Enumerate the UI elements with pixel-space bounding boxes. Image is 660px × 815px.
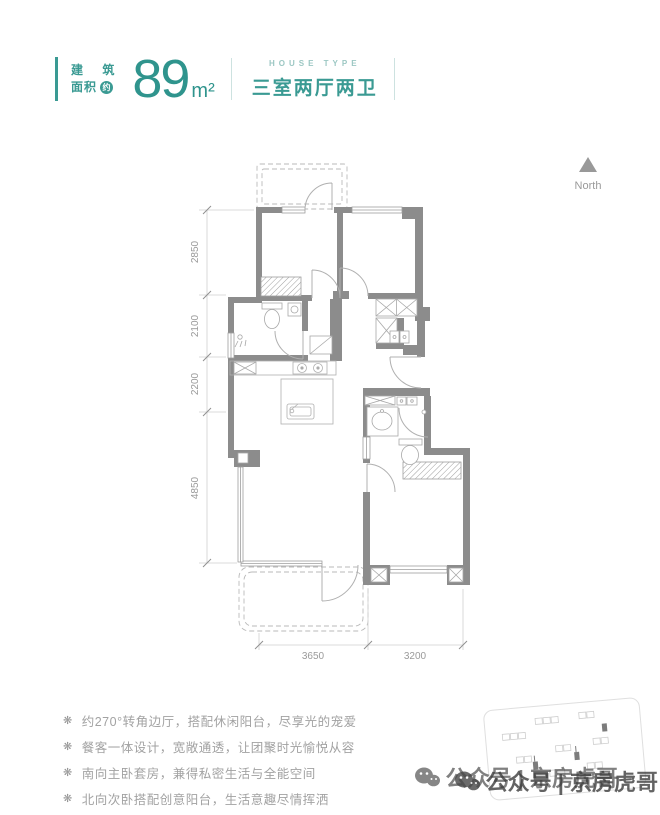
entry-door: [390, 357, 421, 388]
dim-left-4850: 4850: [190, 476, 201, 499]
bath-door: [275, 331, 303, 359]
wechat-icon: [414, 766, 441, 789]
bullet-icon: ❋: [63, 741, 73, 753]
bullet-icon: ❋: [63, 767, 73, 779]
feature-text: 约270°转角边厅，搭配休闲阳台，尽享光的宠爱: [82, 711, 357, 730]
suite-door: [367, 464, 395, 492]
feature-text: 北向次卧搭配创意阳台，生活意趣尽情挥洒: [82, 789, 329, 808]
dim-bottom-3650: 3650: [302, 651, 325, 662]
dim-left-2200: 2200: [190, 372, 201, 395]
north-balcony: [257, 164, 347, 209]
watermark: 公众号 | 京房虎哥: [454, 765, 658, 797]
north-triangle-icon: North: [575, 157, 602, 192]
north-label: North: [575, 180, 602, 192]
feature-item: ❋ 南向主卧套房，兼得私密生活与全能空间: [63, 763, 357, 782]
wechat-icon: [454, 770, 481, 793]
bullet-icon: ❋: [63, 715, 73, 727]
feature-item: ❋ 约270°转角边厅，搭配休闲阳台，尽享光的宠爱: [63, 711, 357, 730]
dim-left-2850: 2850: [190, 240, 201, 263]
south-balcony: [239, 567, 368, 631]
bullet-icon: ❋: [63, 793, 73, 805]
south-balcony-door: [322, 565, 358, 601]
feature-text: 南向主卧套房，兼得私密生活与全能空间: [82, 763, 316, 782]
feature-item: ❋ 餐客一体设计，宽敞通透，让团聚时光愉悦从容: [63, 737, 357, 756]
dim-left-2100: 2100: [190, 314, 201, 337]
walls: [228, 207, 470, 585]
feature-list: ❋ 约270°转角边厅，搭配休闲阳台，尽享光的宠爱 ❋ 餐客一体设计，宽敞通透，…: [63, 711, 357, 815]
north-balcony-door: [305, 183, 332, 210]
feature-text: 餐客一体设计，宽敞通透，让团聚时光愉悦从容: [82, 737, 355, 756]
floor-plan: North: [0, 0, 660, 700]
feature-item: ❋ 北向次卧搭配创意阳台，生活意趣尽情挥洒: [63, 789, 357, 808]
watermark-text: 公众号 | 京房虎哥: [486, 765, 658, 797]
dim-bottom-3200: 3200: [404, 651, 427, 662]
